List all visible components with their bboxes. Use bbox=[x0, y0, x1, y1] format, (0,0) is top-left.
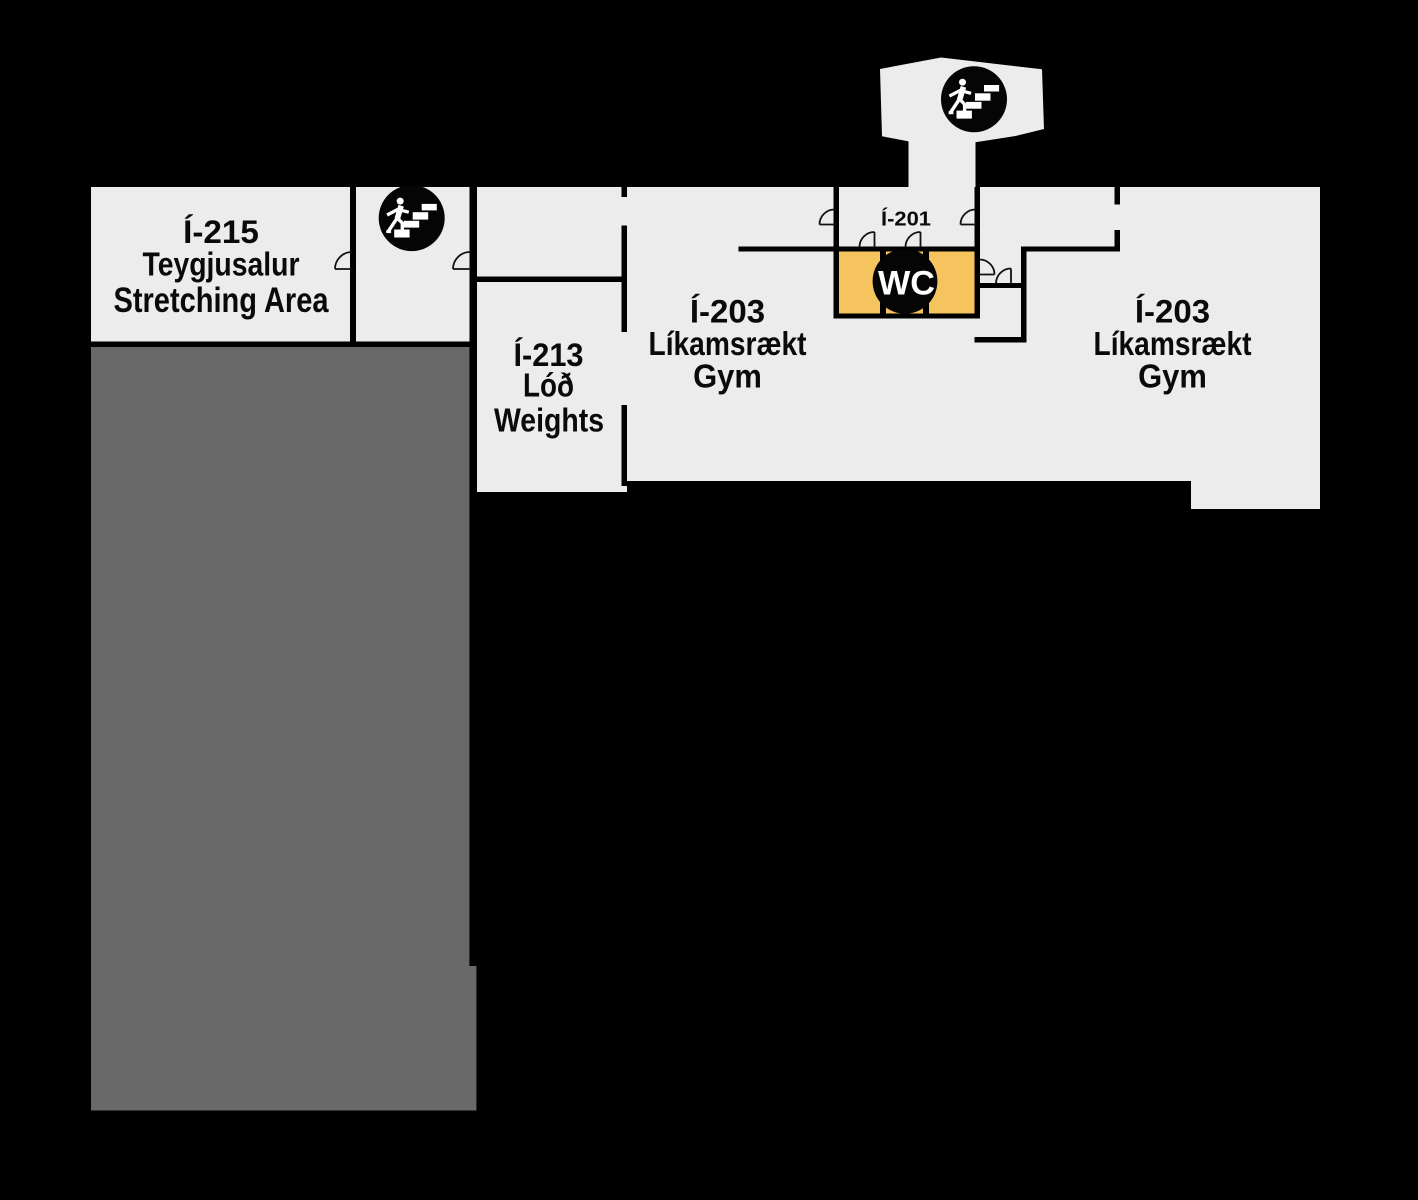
svg-text:Líkamsrækt: Líkamsrækt bbox=[1094, 325, 1252, 362]
svg-text:Líkamsrækt: Líkamsrækt bbox=[649, 325, 807, 362]
svg-text:Gym: Gym bbox=[693, 358, 762, 395]
svg-text:Lóð: Lóð bbox=[523, 367, 574, 404]
svg-text:Gym: Gym bbox=[1138, 358, 1207, 395]
svg-text:Teygjusalur: Teygjusalur bbox=[143, 246, 300, 283]
svg-text:WC: WC bbox=[878, 265, 935, 303]
svg-text:Í-201: Í-201 bbox=[881, 208, 931, 231]
svg-text:Weights: Weights bbox=[494, 402, 604, 439]
svg-text:Stretching Area: Stretching Area bbox=[114, 281, 329, 320]
